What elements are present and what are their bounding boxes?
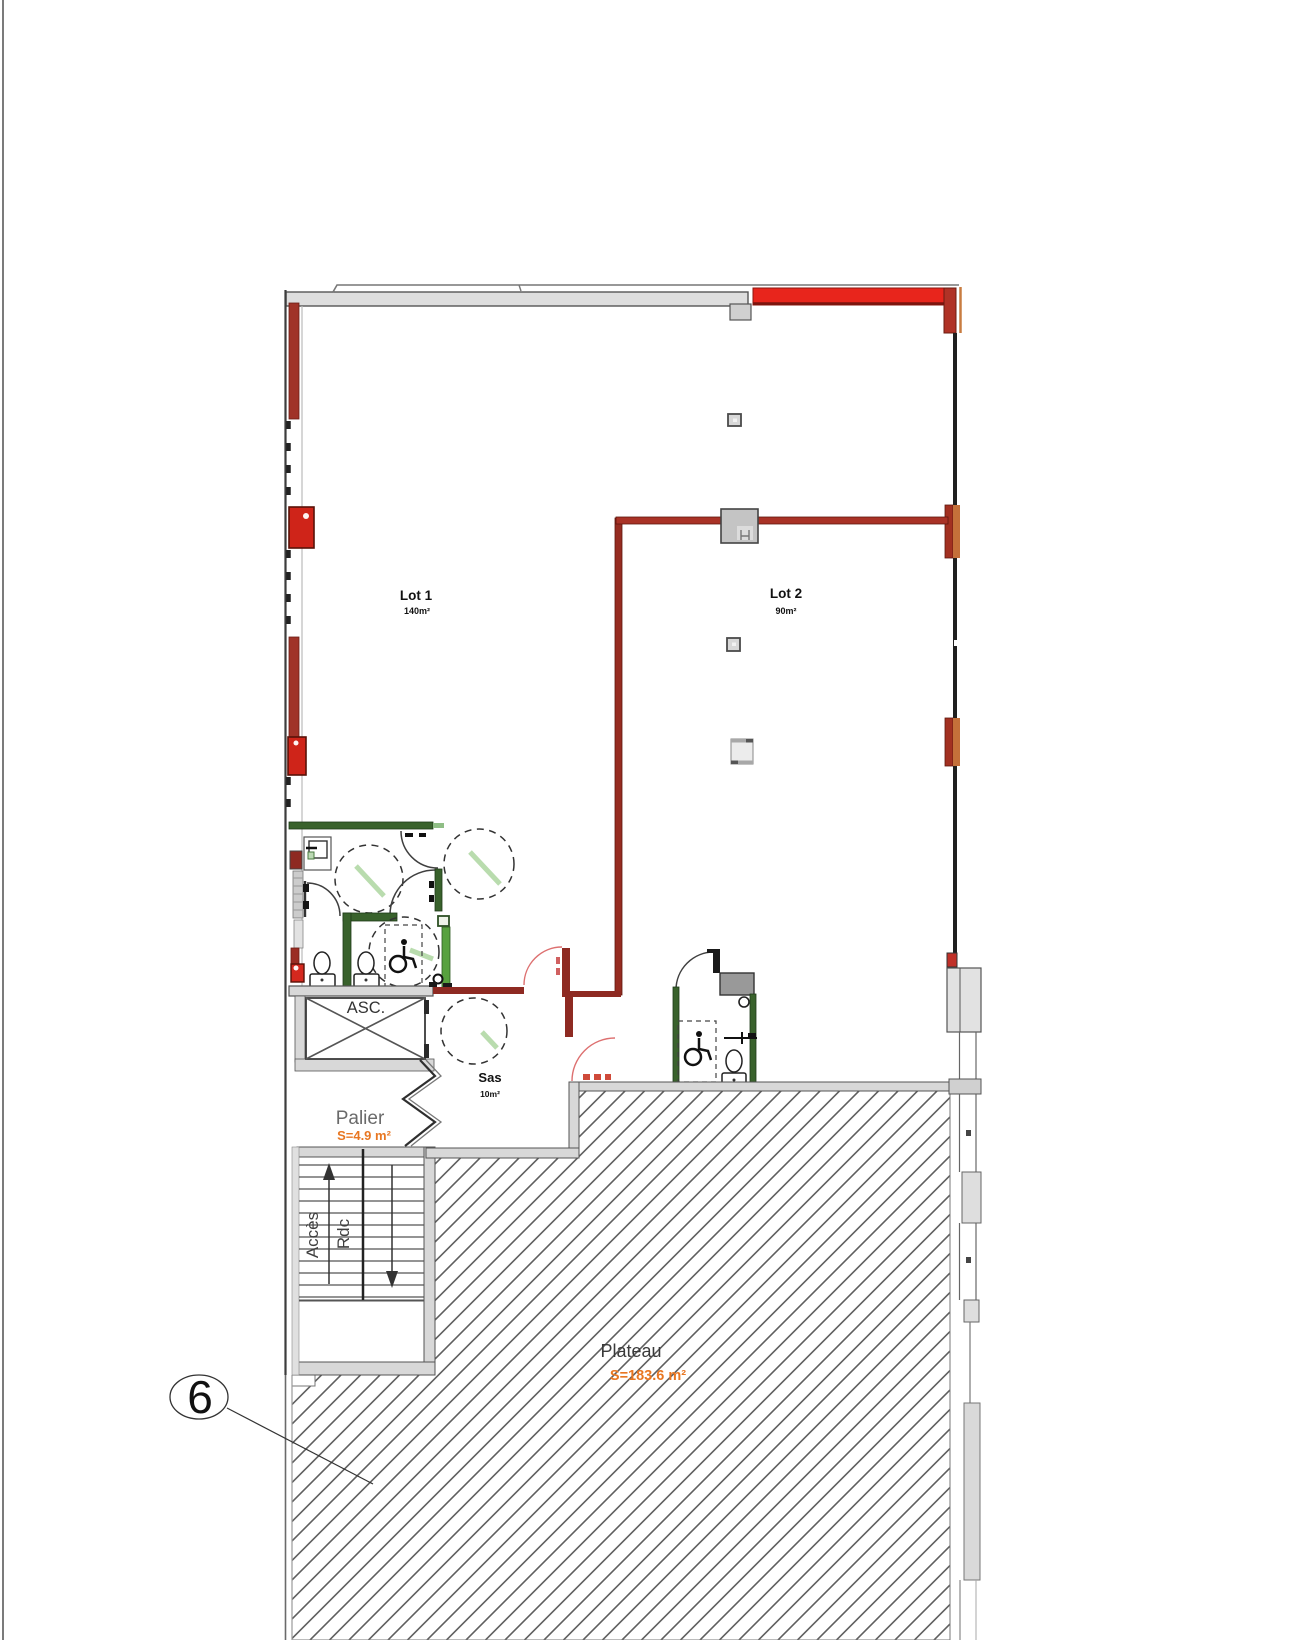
svg-text:Sas: Sas	[478, 1070, 501, 1085]
svg-text:10m²: 10m²	[480, 1089, 500, 1099]
svg-text:S=4.9 m²: S=4.9 m²	[337, 1128, 392, 1143]
svg-text:Rdc: Rdc	[334, 1218, 353, 1249]
svg-text:140m²: 140m²	[404, 606, 430, 616]
svg-text:Lot 1: Lot 1	[400, 588, 433, 603]
svg-text:S=183.6 m²: S=183.6 m²	[610, 1368, 686, 1384]
svg-text:90m²: 90m²	[775, 606, 796, 616]
svg-text:ASC.: ASC.	[347, 999, 386, 1017]
svg-text:Accès: Accès	[303, 1212, 322, 1258]
svg-text:6: 6	[187, 1371, 213, 1423]
svg-text:Lot 2: Lot 2	[770, 586, 802, 601]
svg-text:Palier: Palier	[336, 1108, 385, 1129]
svg-text:Plateau: Plateau	[600, 1341, 661, 1361]
